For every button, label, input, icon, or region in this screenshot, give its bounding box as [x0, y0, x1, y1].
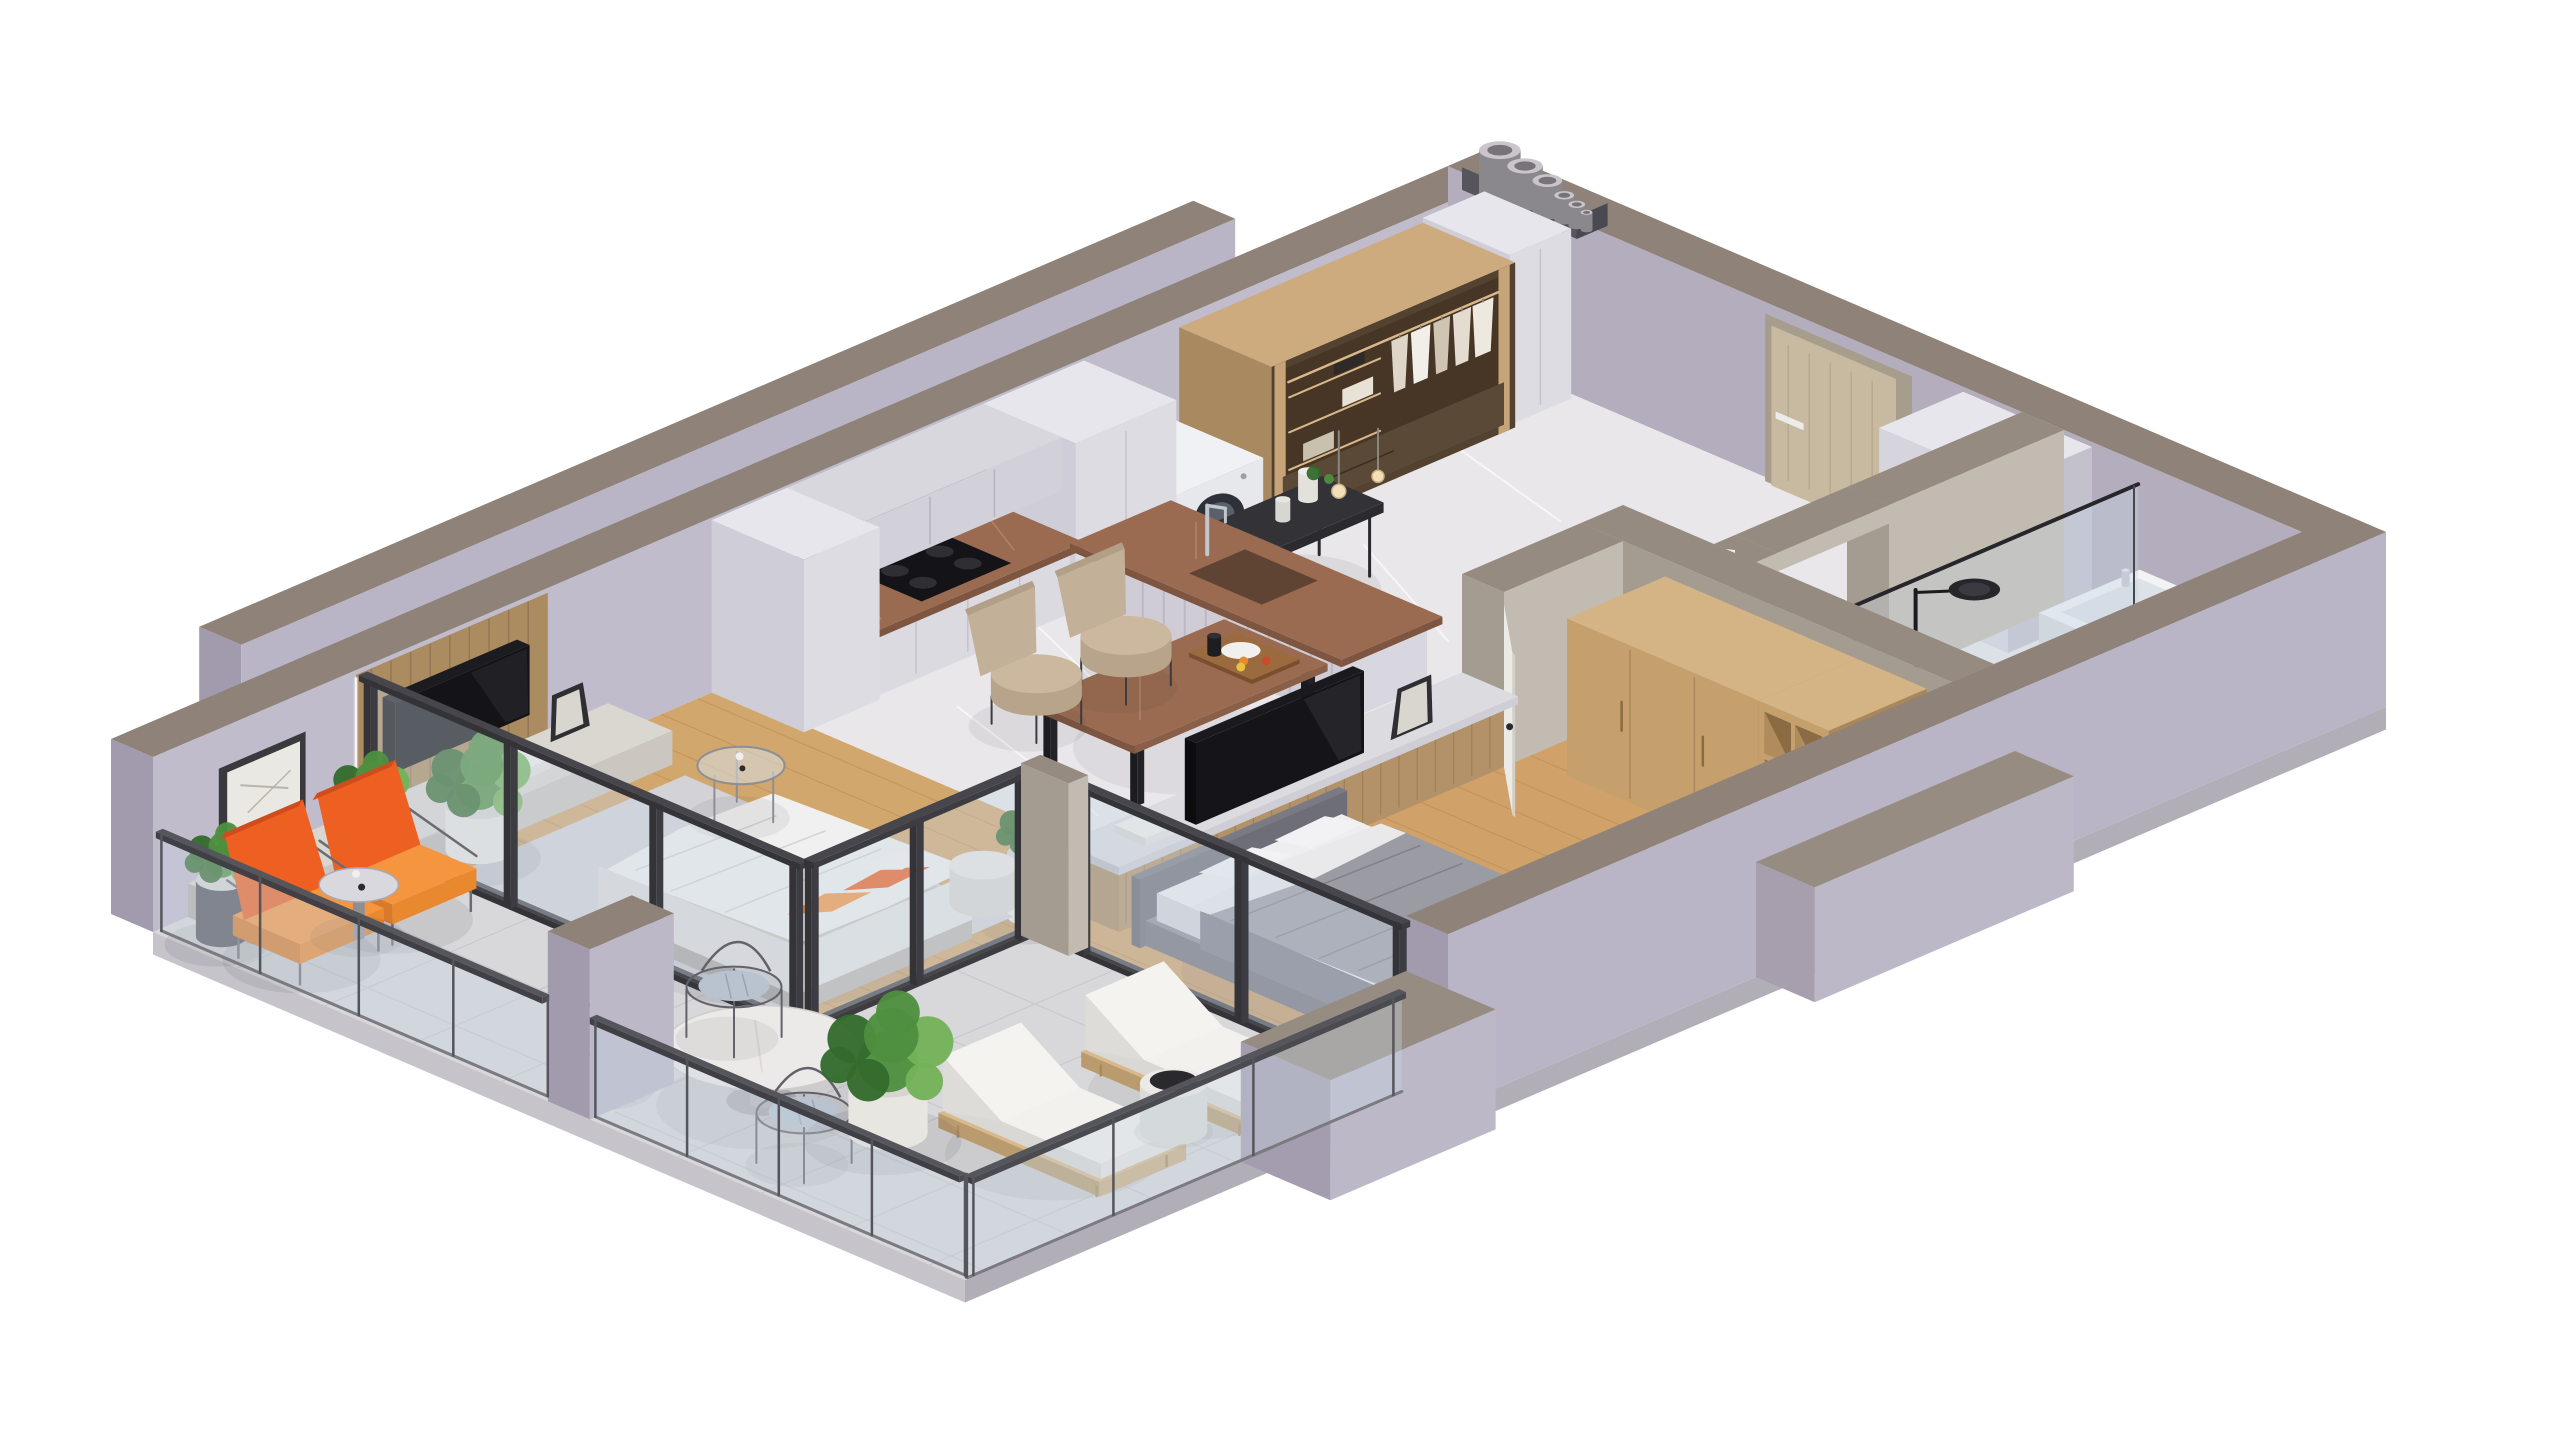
corner-post — [1021, 763, 1069, 956]
corner-post — [1069, 775, 1089, 956]
wall-northwest — [111, 739, 153, 932]
hanging-clothes — [1453, 307, 1471, 366]
balcony-pillar — [548, 931, 590, 1119]
hanging-clothes — [1411, 324, 1431, 384]
tall-cabinet-column — [804, 527, 880, 732]
floorplan-stage — [0, 0, 2560, 1440]
hanging-clothes — [1473, 297, 1494, 357]
apartment-isometric-render — [0, 0, 2560, 1440]
